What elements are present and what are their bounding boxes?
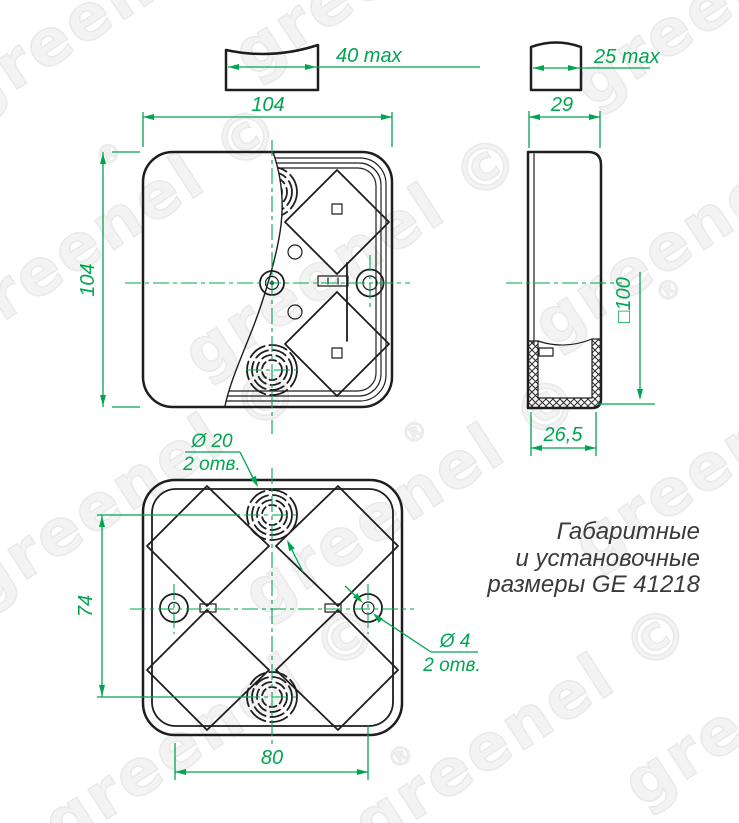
dim-inner-depth: □100 [598, 272, 655, 404]
round-hole-upper [288, 245, 302, 259]
latch-slot [318, 276, 348, 286]
side-view: 29 □100 26,5 [506, 94, 655, 456]
bottom-view: 74 80 Ø 20 2 отв. [75, 431, 481, 780]
box-outline-side [528, 152, 601, 408]
dim-104-left-label: 104 [77, 263, 99, 296]
callout-o4-dia-label: Ø 4 [439, 631, 471, 652]
dim-40max-label: 40 max [336, 45, 403, 67]
dim-100-label: □100 [613, 277, 635, 322]
lid-break-line [225, 152, 282, 406]
knockout-profile-side-view: 25 max [531, 43, 661, 91]
dim-80-label: 80 [261, 747, 283, 769]
callout-knockout-dia: Ø 20 2 отв. [182, 431, 303, 572]
diamond-plate-sw [147, 610, 269, 730]
square-hole-lower [332, 348, 342, 358]
callout-o4-qty-label: 2 отв. [422, 655, 480, 676]
dim-knockout-spacing: 74 [75, 515, 252, 697]
front-view: 104 104 [77, 94, 410, 434]
diamond-plate-upper [285, 170, 389, 274]
title-line-2: и установочные [515, 545, 700, 572]
knockout-profile-front-view: 40 max [226, 45, 480, 90]
title-line-1: Габаритные [557, 518, 700, 545]
callout-o20-qty-label: 2 отв. [182, 454, 240, 475]
box-outline-front [143, 152, 392, 407]
drawing-sheet: greenel © greenel © greenel © greenel © … [0, 0, 739, 823]
dim-29-label: 29 [550, 94, 573, 116]
diamond-plate-se [276, 610, 398, 730]
callout-o20-dia-label: Ø 20 [190, 431, 233, 452]
round-hole-lower [288, 305, 302, 319]
dimensional-drawing: 40 max 25 max [0, 0, 739, 823]
dim-height-front: 104 [77, 152, 140, 407]
dim-104-top-label: 104 [251, 94, 284, 116]
dim-74-label: 74 [75, 595, 97, 617]
latch-tab [539, 348, 553, 356]
dim-25max-label: 25 max [593, 46, 661, 68]
diamond-plate-nw [147, 486, 269, 606]
dim-depth-side: 29 [529, 94, 600, 148]
dim-26-5-label: 26,5 [543, 424, 584, 446]
dim-inner-bottom-width: 26,5 [531, 412, 596, 456]
square-hole-upper [332, 204, 342, 214]
dim-width-front: 104 [143, 94, 392, 147]
title-line-3: размеры GE 41218 [486, 571, 700, 598]
drawing-title: Габаритные и установочные размеры GE 412… [486, 518, 700, 598]
callout-mount-hole-dia: Ø 4 2 отв. [345, 586, 481, 676]
